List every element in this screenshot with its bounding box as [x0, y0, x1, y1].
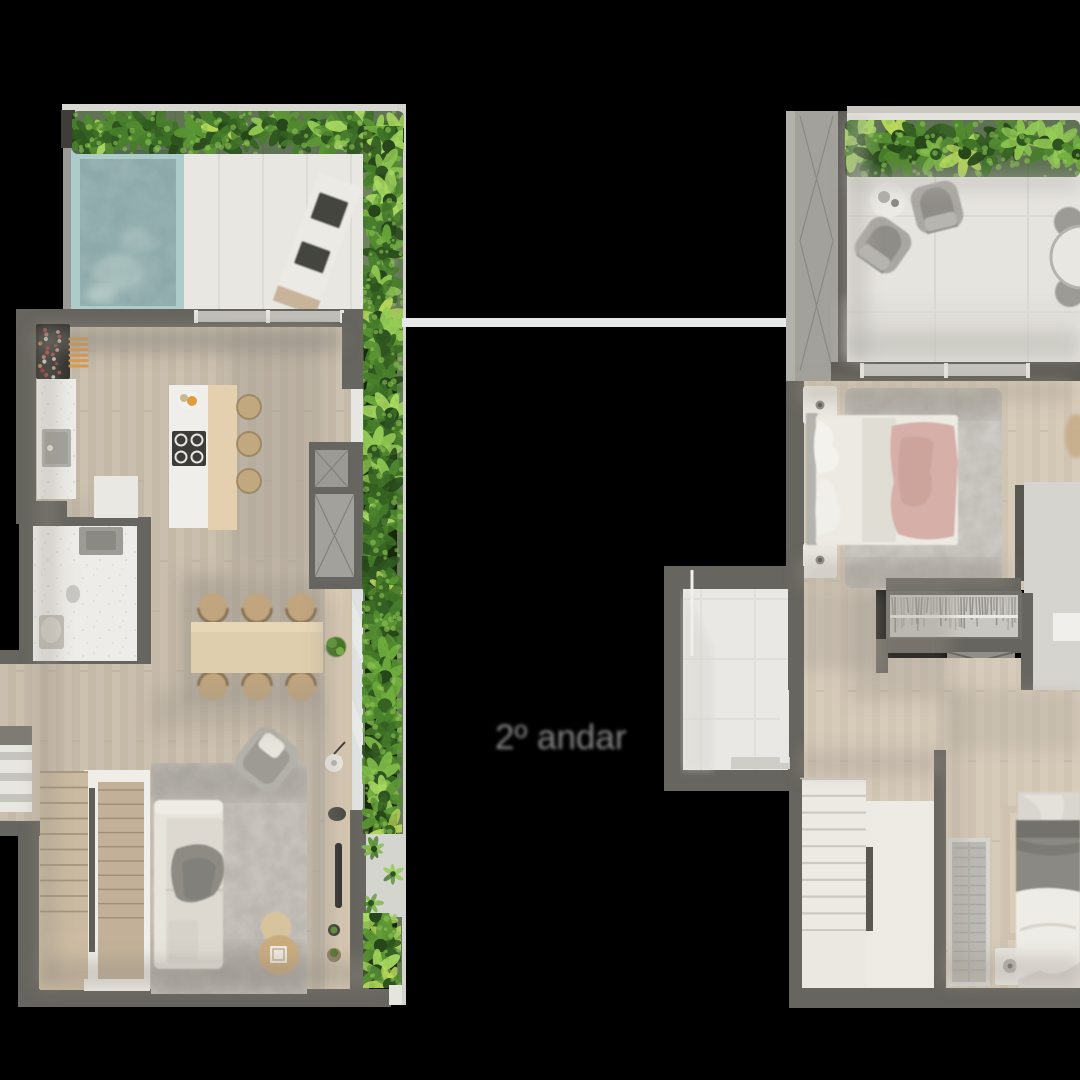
- svg-text:2º andar: 2º andar: [495, 718, 627, 757]
